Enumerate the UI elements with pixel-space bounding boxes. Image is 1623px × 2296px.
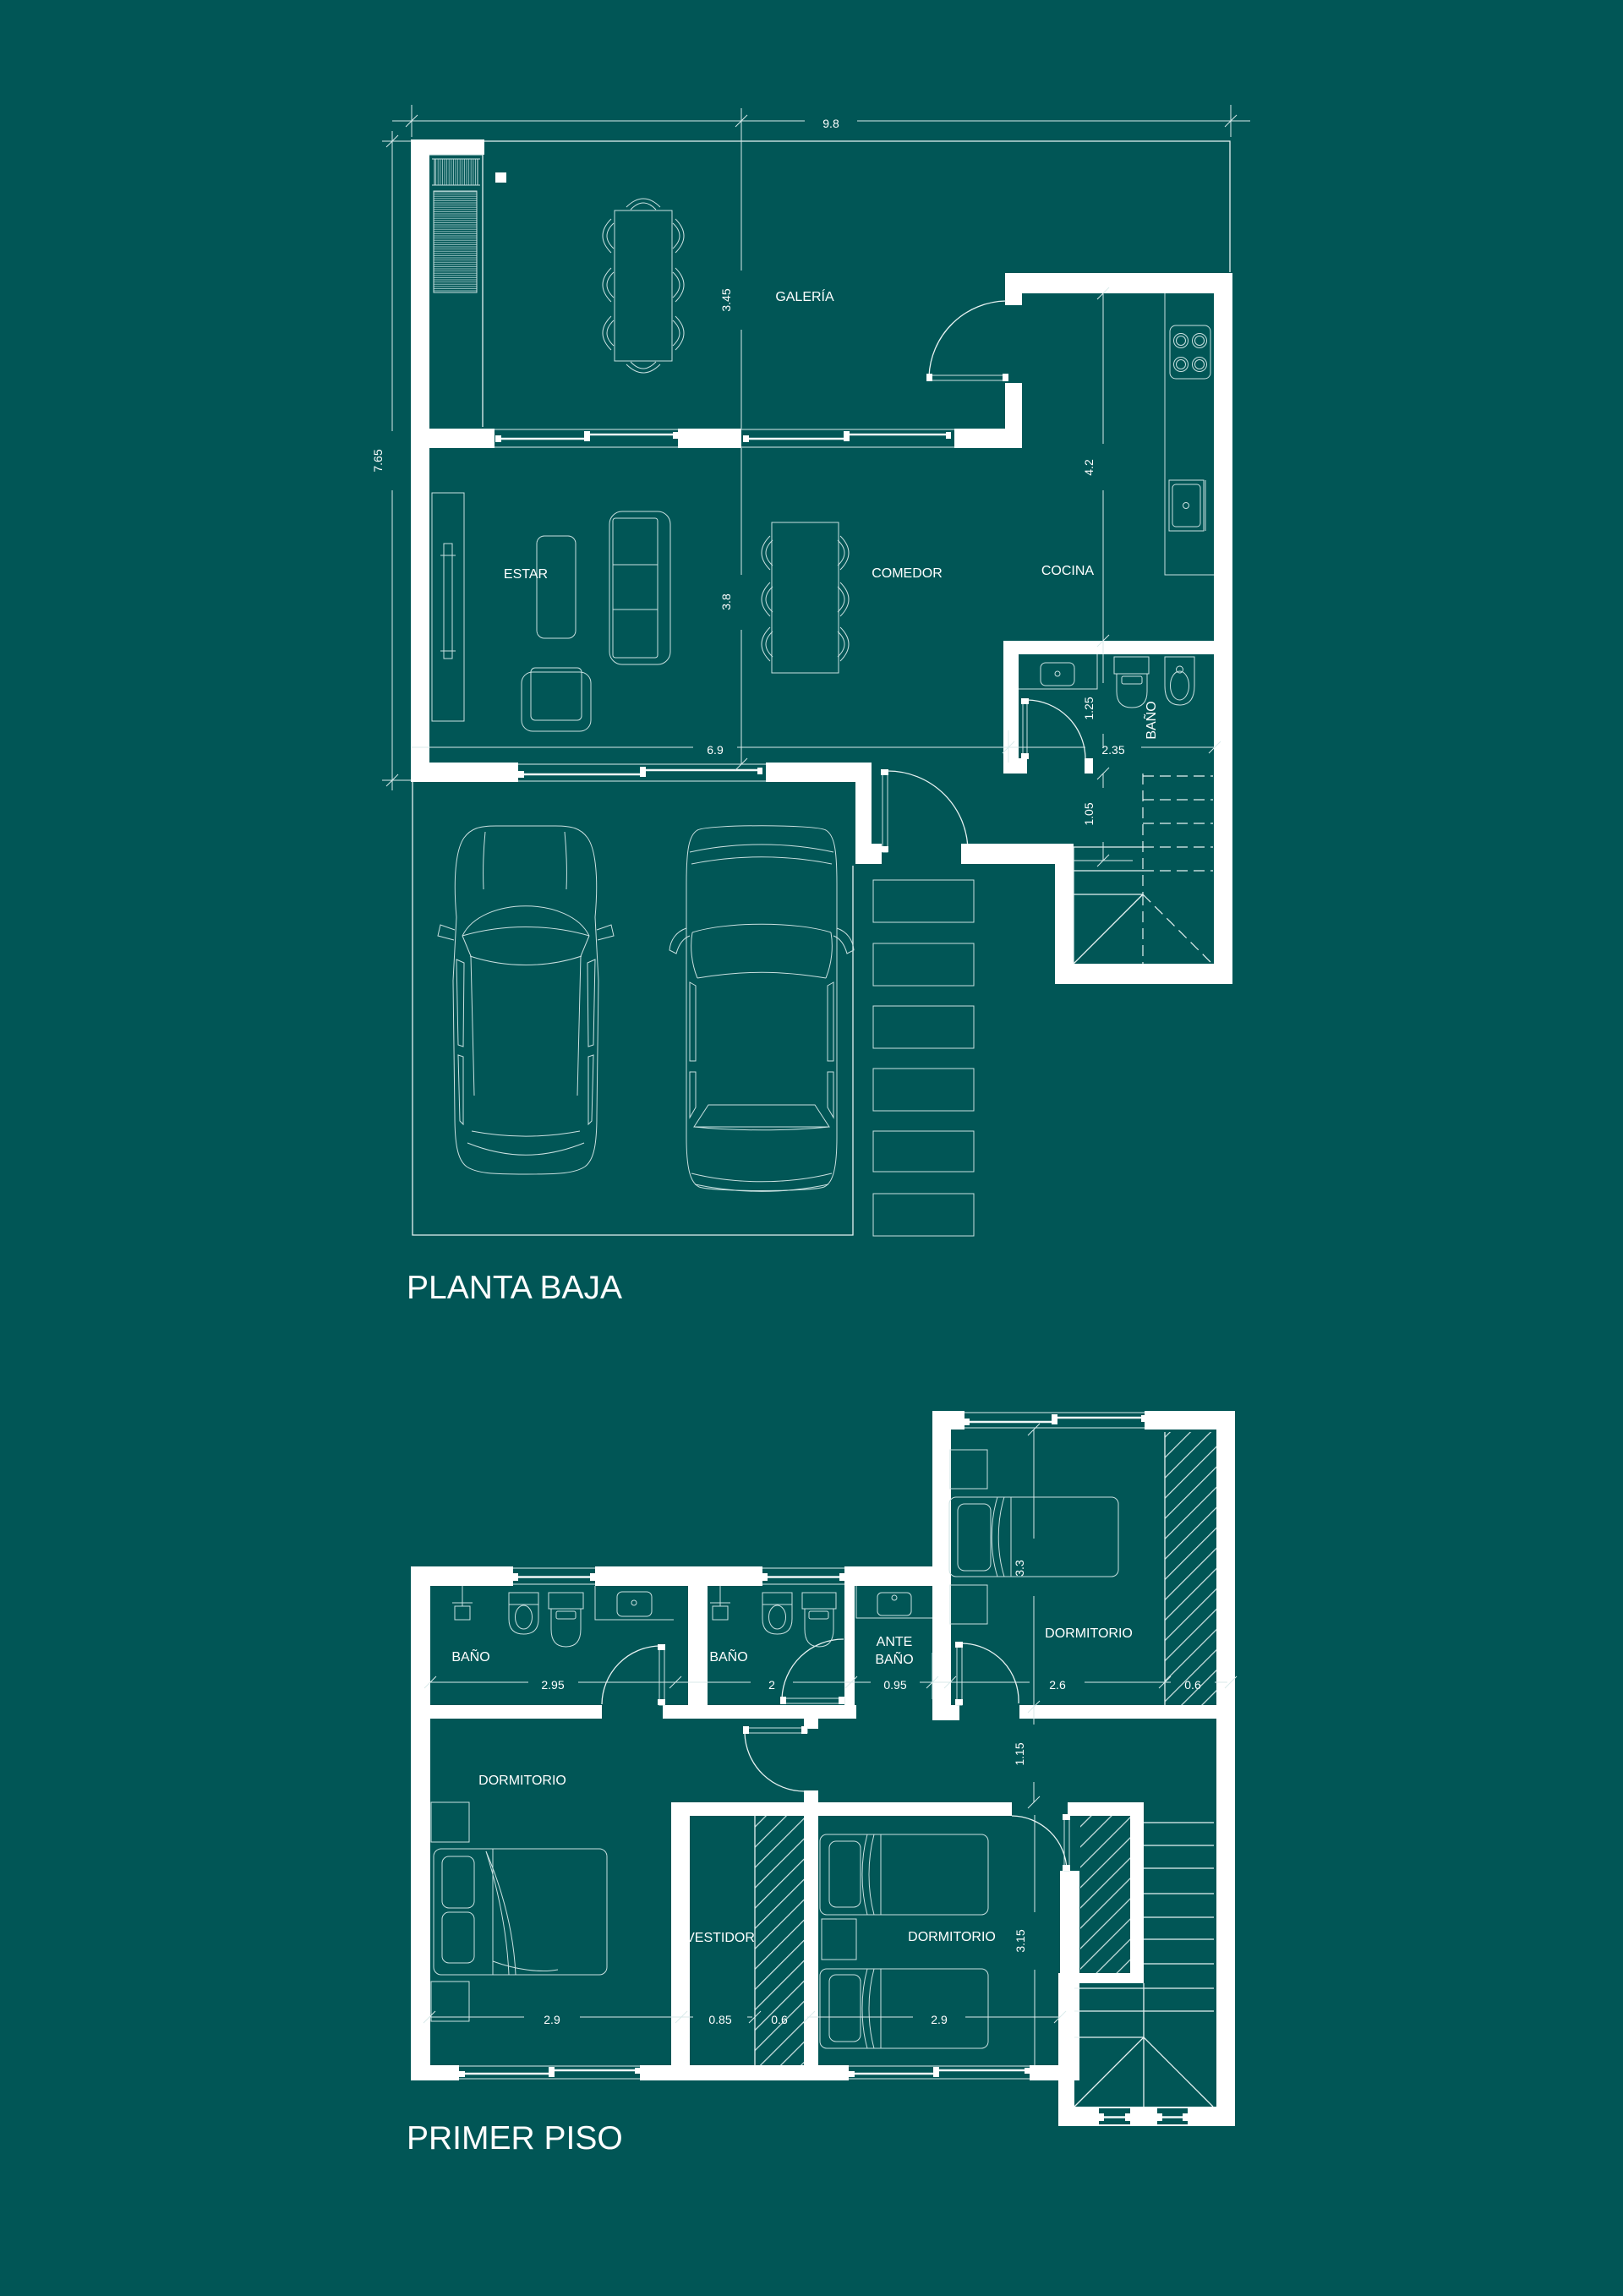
svg-text:PRIMER PISO: PRIMER PISO bbox=[407, 2120, 623, 2157]
svg-text:2.9: 2.9 bbox=[544, 2013, 560, 2026]
svg-text:0.6: 0.6 bbox=[771, 2013, 788, 2026]
svg-text:3.45: 3.45 bbox=[719, 288, 733, 311]
svg-text:1.05: 1.05 bbox=[1082, 802, 1096, 825]
svg-text:3.15: 3.15 bbox=[1014, 1929, 1027, 1952]
svg-text:COCINA: COCINA bbox=[1041, 564, 1095, 578]
svg-text:BAÑO: BAÑO bbox=[709, 1648, 747, 1665]
svg-text:ESTAR: ESTAR bbox=[504, 567, 548, 582]
svg-text:9.8: 9.8 bbox=[822, 117, 839, 130]
svg-text:3.8: 3.8 bbox=[719, 593, 733, 610]
svg-text:2.9: 2.9 bbox=[931, 2013, 948, 2026]
svg-text:2.95: 2.95 bbox=[541, 1678, 564, 1692]
svg-text:1.25: 1.25 bbox=[1082, 697, 1096, 719]
svg-text:GALERÍA: GALERÍA bbox=[775, 288, 834, 304]
svg-text:7.65: 7.65 bbox=[371, 449, 385, 472]
svg-text:4.2: 4.2 bbox=[1082, 459, 1096, 476]
svg-text:0.85: 0.85 bbox=[708, 2013, 731, 2026]
svg-text:2.6: 2.6 bbox=[1049, 1678, 1066, 1692]
svg-text:VESTIDOR: VESTIDOR bbox=[686, 1931, 755, 1945]
svg-text:1.15: 1.15 bbox=[1013, 1742, 1026, 1765]
svg-text:6.9: 6.9 bbox=[707, 743, 724, 757]
svg-text:BAÑO: BAÑO bbox=[451, 1648, 489, 1665]
svg-text:3.3: 3.3 bbox=[1013, 1560, 1026, 1577]
svg-text:2: 2 bbox=[768, 1678, 775, 1692]
svg-text:0.95: 0.95 bbox=[883, 1678, 906, 1692]
svg-text:BAÑO: BAÑO bbox=[875, 1650, 913, 1667]
svg-text:ANTE: ANTE bbox=[877, 1635, 913, 1649]
svg-text:PLANTA BAJA: PLANTA BAJA bbox=[407, 1270, 622, 1306]
svg-text:BAÑO: BAÑO bbox=[1142, 701, 1159, 739]
svg-text:DORMITORIO: DORMITORIO bbox=[908, 1930, 996, 1944]
svg-text:COMEDOR: COMEDOR bbox=[872, 566, 943, 581]
svg-text:DORMITORIO: DORMITORIO bbox=[1045, 1626, 1133, 1641]
svg-text:2.35: 2.35 bbox=[1101, 743, 1124, 757]
svg-text:0.6: 0.6 bbox=[1184, 1678, 1201, 1692]
svg-text:DORMITORIO: DORMITORIO bbox=[478, 1774, 566, 1788]
